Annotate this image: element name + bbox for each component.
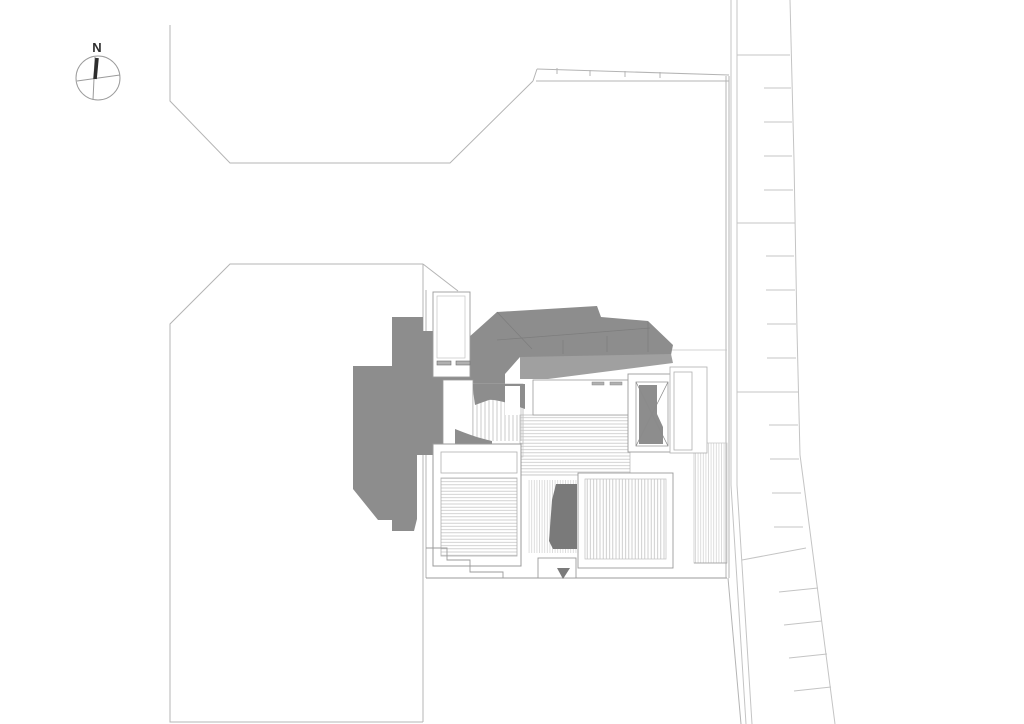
terrace-deck-horizontal xyxy=(520,415,630,475)
gap-white xyxy=(505,386,520,415)
boundary-plot-east-lower xyxy=(728,578,741,724)
x-braced-shaft xyxy=(628,374,675,452)
road xyxy=(731,0,835,724)
parking-dividers xyxy=(737,55,806,560)
building xyxy=(353,292,727,579)
court-deck-vertical xyxy=(585,479,666,559)
parking-bay-ticks xyxy=(764,88,831,691)
road-east-edge xyxy=(790,0,835,724)
road-west-edge-outer xyxy=(731,0,746,724)
court-southeast xyxy=(578,473,673,568)
north-label: N xyxy=(92,40,101,55)
boundary-apex xyxy=(533,69,537,81)
boundary-corner-diagonal xyxy=(423,264,458,291)
east-deck-strip xyxy=(694,443,727,563)
fence-upper-line xyxy=(537,69,729,75)
north-needle-icon xyxy=(95,58,97,79)
east-terrace xyxy=(670,350,727,453)
site-plan-page: N xyxy=(0,0,1024,724)
ramp-strip xyxy=(527,480,580,553)
pool-deck-horizontal xyxy=(441,478,517,556)
boundary-top-left-parcel xyxy=(170,25,533,163)
compass-cross-horizontal xyxy=(77,75,120,81)
pool-white-band xyxy=(441,452,517,473)
north-compass: N xyxy=(76,40,120,100)
site-plan-drawing: N xyxy=(0,0,1024,724)
